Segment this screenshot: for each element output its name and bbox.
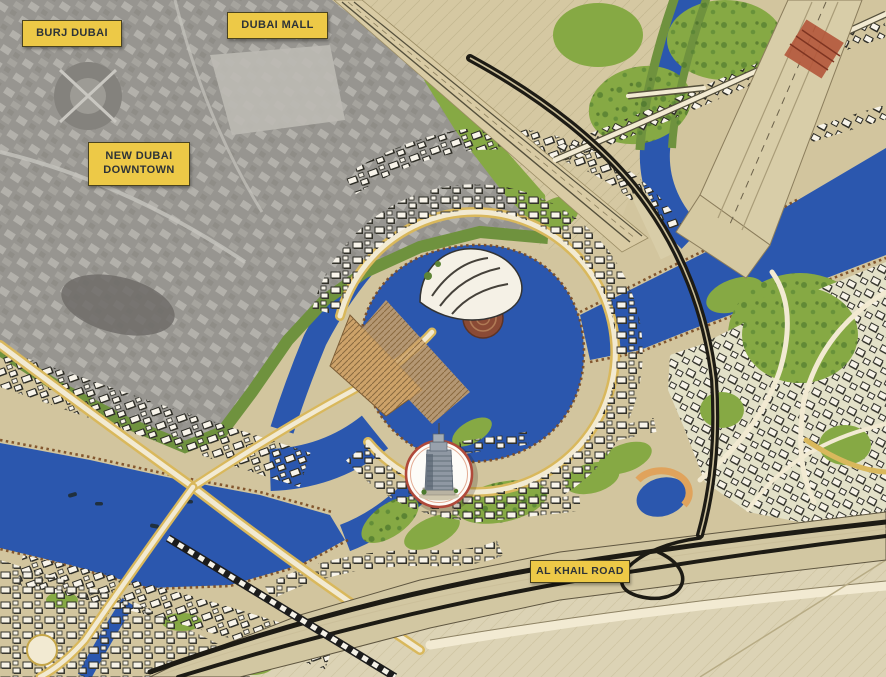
label-al-khail-road: AL KHAIL ROAD xyxy=(530,560,630,583)
dubai-mall-block xyxy=(210,45,345,135)
star-plaza xyxy=(27,635,57,665)
label-burj-dubai: BURJ DUBAI xyxy=(22,20,122,47)
label-dubai-mall: DUBAI MALL xyxy=(227,12,328,39)
map-canvas xyxy=(0,0,886,677)
label-new-dubai-downtown: NEW DUBAI DOWNTOWN xyxy=(88,142,190,186)
location-map: BURJ DUBAI DUBAI MALL NEW DUBAI DOWNTOWN… xyxy=(0,0,886,677)
